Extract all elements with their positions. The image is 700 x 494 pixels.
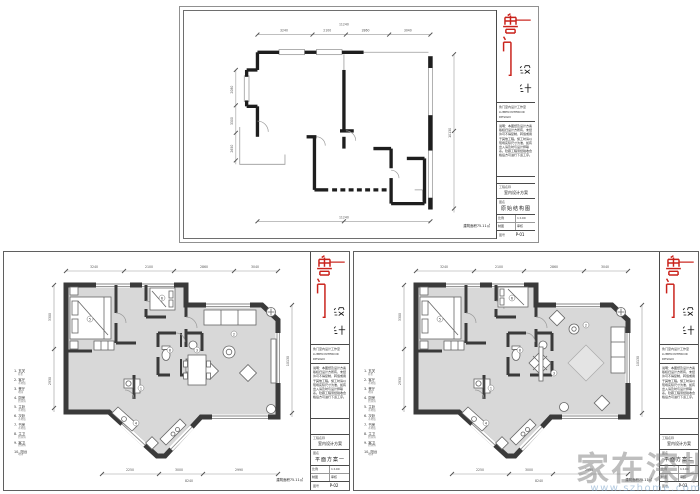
draw-cell: 制图: [660, 474, 679, 481]
drawing-number-value: P-01: [516, 232, 525, 237]
project-field: 工程名称 室内设计方案: [311, 434, 349, 449]
titleblock-blank: [497, 176, 535, 183]
studio-info-line2: LUMEN INTERIOR DESIGN: [313, 352, 347, 362]
studio-info: 鲁门室内设计工作室 LUMEN INTERIOR DESIGN: [497, 102, 535, 121]
sheet-plan-option-2: 1. 玄关鞋柜2. 客厅木地板3. 餐厅地砖4. 厨房防滑砖5. 主卧木地板6.…: [353, 251, 699, 491]
svg-text:6: 6: [161, 296, 163, 300]
scale-date-grid: 比例 1:100 制图 审核: [497, 214, 535, 230]
drawing-name-value: 平面方案一: [313, 456, 347, 463]
logo-lu-icon: [317, 256, 345, 275]
scale-value-cell: 1:100: [330, 466, 349, 474]
svg-text:3240: 3240: [280, 29, 288, 33]
svg-text:2860: 2860: [362, 29, 370, 33]
scale-cell: 比例: [660, 466, 679, 474]
structure-plan-drawing: 11240 3240 2100 2860 3040 2080 3300 2650…: [194, 11, 486, 239]
project-field: 工程名称 室内设计方案: [497, 183, 535, 198]
scale-cell: 比例: [311, 466, 330, 474]
svg-text:3: 3: [553, 371, 555, 375]
svg-text:2100: 2100: [323, 29, 331, 33]
svg-text:3040: 3040: [404, 29, 412, 33]
svg-text:2990: 2990: [585, 468, 593, 472]
logo-lu-icon: [666, 256, 694, 275]
drawing-name-field: 图名 平面方案二: [660, 449, 698, 465]
check-cell: 审核: [516, 223, 535, 230]
logo-she-icon: [334, 308, 344, 316]
drawing-name-value: 原始结构图: [499, 205, 533, 212]
drawing-name-label: 图名: [313, 451, 347, 455]
svg-text:2930: 2930: [398, 377, 402, 385]
titleblock-blank: [660, 418, 698, 434]
svg-text:2650: 2650: [230, 145, 234, 153]
svg-text:3000: 3000: [175, 468, 183, 472]
svg-text:3000: 3000: [525, 468, 533, 472]
drawing-notes: 说明：本图纸及设计方案版权归设计方所有，未经许可不得复制、转载或用于其他工程。施…: [497, 121, 535, 176]
logo-she-icon: [683, 308, 693, 316]
svg-text:4: 4: [485, 421, 487, 425]
svg-text:2250: 2250: [126, 468, 134, 472]
page-canvas: 11240 3240 2100 2860 3040 2080 3300 2650…: [0, 0, 700, 494]
drawing-number-label: 图号: [313, 484, 319, 488]
svg-text:10130: 10130: [636, 356, 640, 366]
svg-text:2: 2: [585, 323, 587, 327]
scale-cell: 比例: [497, 215, 516, 223]
svg-text:5: 5: [89, 317, 91, 321]
scale-date-grid: 比例 1:100 制图 审核: [311, 465, 349, 481]
walls: [247, 52, 431, 209]
sheet-structure-plan: 11240 3240 2100 2860 3040 2080 3300 2650…: [179, 6, 539, 243]
logo-men-icon: [318, 279, 325, 318]
drawing-name-value: 平面方案二: [662, 456, 696, 463]
svg-text:3040: 3040: [601, 265, 609, 269]
svg-text:2080: 2080: [230, 86, 234, 94]
logo-lu-icon: [503, 14, 531, 33]
svg-text:11240: 11240: [339, 215, 349, 219]
svg-text:8: 8: [169, 348, 171, 352]
logo-men-icon: [667, 279, 674, 318]
svg-text:3300: 3300: [230, 117, 234, 125]
drawing-name-label: 图名: [499, 200, 533, 204]
drawing-number-value: P-03: [679, 483, 688, 488]
project-value: 室内设计方案: [313, 441, 347, 447]
project-label: 工程名称: [313, 436, 347, 440]
window-outlines: [240, 50, 433, 210]
studio-info-line2: LUMEN INTERIOR DESIGN: [662, 352, 696, 362]
area-note: 建筑面积75.11㎡: [625, 477, 652, 482]
project-field: 工程名称 室内设计方案: [660, 434, 698, 449]
check-cell: 审核: [330, 474, 349, 481]
svg-text:2930: 2930: [48, 377, 52, 385]
svg-text:3300: 3300: [48, 313, 52, 321]
svg-text:3040: 3040: [251, 265, 259, 269]
floor-plan-b-drawing: 3240 2100 2860 3040 3300 2930 10130 2250…: [388, 255, 658, 487]
studio-info-line2: LUMEN INTERIOR DESIGN: [499, 110, 533, 120]
titleblock: 鲁门室内设计工作室 LUMEN INTERIOR DESIGN 说明：本图纸及设…: [659, 252, 698, 490]
drawing-name-field: 图名 平面方案一: [311, 449, 349, 465]
svg-text:10130: 10130: [448, 128, 452, 138]
drawing-notes: 说明：本图纸及设计方案版权归设计方所有，未经许可不得复制、转载或用于其他工程。施…: [660, 363, 698, 418]
logo-ji-icon: [683, 326, 694, 335]
logo-she-icon: [520, 66, 530, 74]
svg-text:5: 5: [439, 317, 441, 321]
svg-text:1: 1: [140, 386, 142, 390]
svg-text:8240: 8240: [535, 479, 543, 483]
brand-logo: [660, 252, 698, 344]
titleblock: 鲁门室内设计工作室 LUMEN INTERIOR DESIGN 说明：本图纸及设…: [310, 252, 349, 490]
svg-text:10130: 10130: [286, 356, 290, 366]
check-cell: 审核: [679, 474, 698, 481]
drawing-number-field: 图号 P-01: [497, 230, 535, 239]
svg-text:8: 8: [519, 348, 521, 352]
project-label: 工程名称: [662, 436, 696, 440]
svg-text:4: 4: [135, 421, 137, 425]
svg-text:2250: 2250: [476, 468, 484, 472]
drawing-number-label: 图号: [499, 233, 505, 237]
logo-ji-icon: [520, 84, 531, 93]
svg-text:2100: 2100: [145, 265, 153, 269]
svg-text:2860: 2860: [200, 265, 208, 269]
project-value: 室内设计方案: [662, 441, 696, 447]
scale-date-grid: 比例 1:100 制图 审核: [660, 465, 698, 481]
drawing-number-field: 图号 P-03: [660, 481, 698, 490]
svg-text:11240: 11240: [339, 23, 349, 27]
area-note: 建筑面积75.11㎡: [463, 223, 490, 228]
drawing-number-value: P-02: [330, 483, 339, 488]
svg-text:2: 2: [233, 332, 235, 336]
logo-ji-icon: [334, 326, 345, 335]
svg-text:3240: 3240: [440, 265, 448, 269]
brand-logo: [311, 252, 349, 344]
titleblock-blank: [311, 418, 349, 434]
svg-text:1: 1: [490, 386, 492, 390]
floor-plan-a-drawing: 3240 2100 2860 3040 3300 2930 10130 2250…: [38, 255, 308, 487]
svg-text:3240: 3240: [90, 265, 98, 269]
drawing-name-field: 图名 原始结构图: [497, 198, 535, 214]
svg-text:2990: 2990: [235, 468, 243, 472]
titleblock: 鲁门室内设计工作室 LUMEN INTERIOR DESIGN 说明：本图纸及设…: [496, 10, 535, 239]
area-note: 建筑面积75.11㎡: [276, 477, 303, 482]
project-label: 工程名称: [499, 185, 533, 189]
studio-info: 鲁门室内设计工作室 LUMEN INTERIOR DESIGN: [311, 344, 349, 363]
sheet-plan-option-1: 1. 玄关鞋柜2. 客厅木地板3. 餐厅地砖4. 厨房防滑砖5. 主卧木地板6.…: [3, 251, 350, 491]
draw-cell: 制图: [497, 223, 516, 230]
svg-text:3: 3: [196, 348, 198, 352]
svg-text:2100: 2100: [495, 265, 503, 269]
svg-text:3300: 3300: [398, 313, 402, 321]
svg-text:6: 6: [511, 296, 513, 300]
logo-men-icon: [504, 37, 511, 76]
scale-value-cell: 1:100: [516, 215, 535, 223]
draw-cell: 制图: [311, 474, 330, 481]
drawing-name-label: 图名: [662, 451, 696, 455]
scale-value-cell: 1:100: [679, 466, 698, 474]
svg-text:2860: 2860: [550, 265, 558, 269]
drawing-notes: 说明：本图纸及设计方案版权归设计方所有，未经许可不得复制、转载或用于其他工程。施…: [311, 363, 349, 418]
studio-info: 鲁门室内设计工作室 LUMEN INTERIOR DESIGN: [660, 344, 698, 363]
svg-text:8240: 8240: [185, 479, 193, 483]
drawing-number-label: 图号: [662, 484, 668, 488]
project-value: 室内设计方案: [499, 190, 533, 196]
drawing-number-field: 图号 P-02: [311, 481, 349, 490]
brand-logo: [497, 10, 535, 102]
